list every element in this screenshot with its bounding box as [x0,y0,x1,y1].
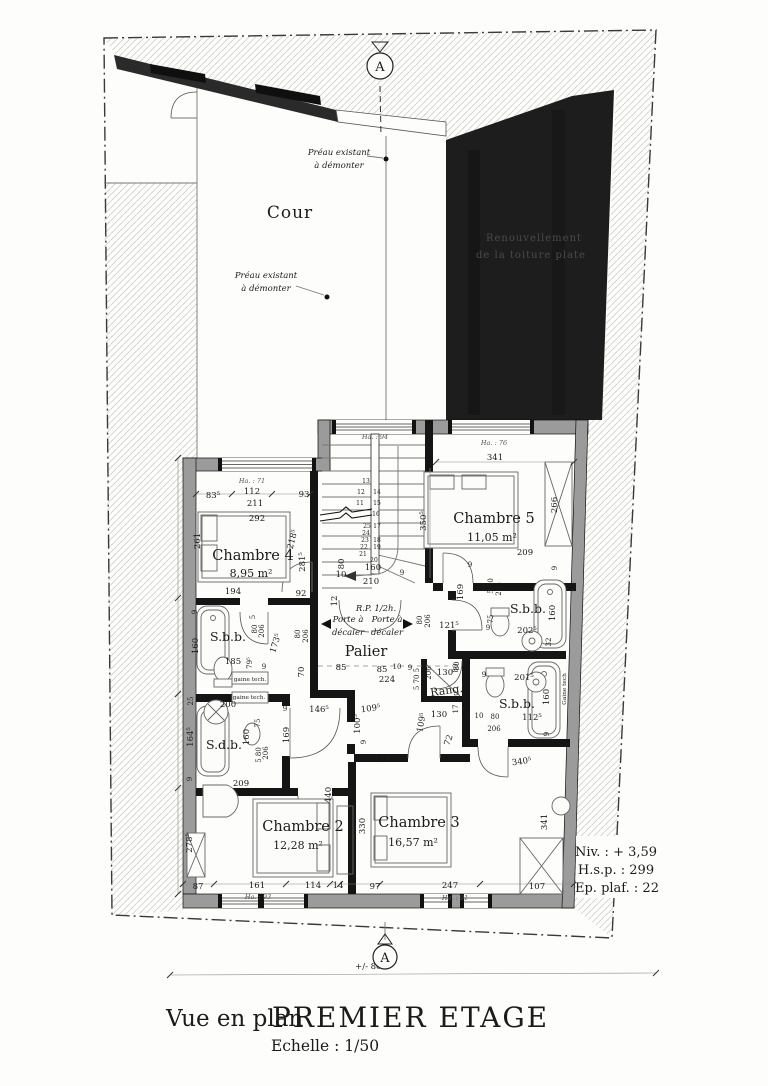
leader-dot [384,157,389,162]
dim-label: 5 [249,615,257,619]
dim-label: 24 [362,530,370,537]
dim-label: 200 [220,700,236,710]
plan-title: PREMIER ETAGE [272,1001,549,1034]
section-letter: A [379,951,390,966]
dim-label: 173⁵ [268,632,284,654]
dim-label: 21 [359,551,367,558]
dim-label: 14 [373,489,381,496]
dim-label: 32 [545,638,553,647]
room-label-palier: Palier [345,644,388,660]
dim-label: 109⁵ [415,712,428,734]
dim-label: 75 [487,615,495,624]
dim-label: 10 [336,570,347,580]
dim-label: 210 [363,577,379,587]
dim-label: 5 70 5 [413,668,421,690]
roof-note: Renouvellement [486,233,582,244]
stair-break-line [320,507,372,515]
duct-label: gaine tech. [233,695,266,701]
dim-label: 75 [254,719,262,728]
dim-label: 340⁵ [511,756,532,769]
door-sbb-right-bottom [478,747,508,777]
scale-label: Echelle : 1/50 [271,1037,379,1055]
dim-label: 17 [373,523,381,530]
room-label-sdb: S.d.b. [206,737,242,752]
dim-label: 330 [358,818,368,834]
dim-label: 23 [361,537,369,544]
door-shift-note: Porte à [332,614,364,625]
dim-label: 20 [370,557,378,564]
washbasin [552,797,570,815]
dim-label: 121⁵ [439,621,459,631]
dim-label: 114⁵ [374,754,394,764]
dim-label: 266 [550,497,560,513]
dim-label: 85 [336,663,347,673]
dim-label: 80 [294,630,302,639]
dim-label: 17 [452,705,460,714]
dim-label: 169 [282,727,292,743]
dim-label: 201⁵ [514,673,534,683]
dim-label: 247 [442,881,458,891]
dim-label: 161 [249,881,265,891]
window-ha94 [332,420,416,434]
dim-label: 9 [482,671,486,679]
preau-note-2: à démonter [241,283,291,294]
dim-label: 70 [297,667,307,678]
bed-chambre2 [253,799,353,877]
dim-label: 109⁵ [360,703,381,716]
dim-label: 169 [456,584,466,600]
dim-label: 9 [551,566,559,570]
fire-rating-note: R.P. 1/2h. [355,604,396,614]
dim-label: 206 [495,582,503,596]
door-sdb-hall [290,708,340,758]
dim-label: 112⁵ [522,713,542,723]
dim-label: 9 [283,705,287,713]
room-area-chambre2: 12,28 m² [273,839,323,852]
dim-label: 10 [475,712,484,720]
dim-label: 130 [431,710,447,720]
dim-label: 9 [408,664,412,672]
washbasin [203,785,238,817]
dim-label: 80 [337,559,347,570]
room-area-chambre3: 16,57 m² [388,836,438,849]
room-label-chambre4: Chambre 4 [212,548,293,564]
dim-label: 206 [487,725,501,733]
dim-label: 9 [262,663,266,671]
dim-label: 194 [225,587,241,597]
room-label-chambre5: Chambre 5 [453,511,534,527]
dim-label: 350⁵ [419,511,429,531]
dim-label: 9 [400,569,404,577]
dim-label: 100⁵ [353,714,363,734]
level-notes: Niv. : + 3,59 H.s.p. : 299 Ep. plaf. : 2… [575,836,659,898]
dim-label: 80 [491,713,500,721]
room-label-sbb-left: S.b.b. [210,629,246,644]
dim-label: 211 [247,499,263,509]
dim-label: 185 [225,657,241,667]
dim-label: 160 [365,563,381,573]
window-height-label: Ha. : 71 [238,477,265,485]
door-shift-arrow-right-icon [403,619,413,629]
dim-label: 80 [416,616,424,625]
dim-label: 130 [437,668,453,678]
dim-label: 209 [233,779,249,789]
dim-label: 9 [486,624,490,632]
dim-label: 206 [425,666,433,680]
dim-label: 12 [357,489,365,496]
dim-label: 206 [262,746,270,760]
leader-dot [325,295,330,300]
dim-label: 146⁵ [309,705,329,715]
dim-label: 97 [370,882,381,892]
dim-label: 160 [242,729,252,745]
dim-label: 92 [296,589,307,599]
window-ha71 [218,458,316,471]
dim-label: 18 [373,537,381,544]
dim-label: 206 [302,629,310,643]
dim-label: 25 [363,523,371,530]
door-shift-note: décaler [332,627,365,638]
dim-label: 160 [191,638,201,654]
dim-label: 261 [193,533,203,549]
door-shift-note: décaler [371,627,404,638]
dim-label: 9 [465,712,469,720]
window-ha76 [448,420,534,434]
dim-label: 292 [249,514,265,524]
dim-label: 14 [333,881,344,891]
note-ceiling-height: H.s.p. : 299 [578,863,654,878]
courtyard-label: Cour [267,203,313,223]
dim-label: 16 [372,511,380,518]
dim-label: 11 [356,500,364,507]
window-height-label: Ha. : 91 [441,894,468,902]
dim-label: 202⁵ [517,626,537,636]
dim-label: 164⁵ [186,727,196,747]
dim-label: 83⁵ [206,491,221,501]
dim-label: 80 [453,662,461,671]
dim-label: 93 [299,490,310,500]
preau-note-2: Préau existant [234,270,298,281]
dim-label: 79⁵ [246,657,254,669]
dim-label: 22 [360,544,368,551]
dim-label: 440 [324,787,334,803]
dim-label: 112 [244,487,260,497]
dim-label: 107 [529,882,545,892]
dim-label: 160 [548,605,558,621]
dim-label: 15 [373,500,381,507]
dim-label: 206 [424,614,432,628]
dim-label: 9 [360,740,368,744]
floor-plan-drawing: A [0,0,768,1086]
dim-label: 9 [186,777,194,781]
dim-label: 5 80 [487,578,495,594]
scanned-floor-plan-page: A [0,0,768,1086]
room-area-chambre4: 8,95 m² [230,567,273,580]
dim-label: 19 [373,544,381,551]
dim-label: 87 [193,882,204,892]
room-label-chambre3: Chambre 3 [378,815,459,831]
section-letter: A [374,60,385,75]
preau-note-1: Préau existant [307,147,371,158]
dim-label: 9 [543,732,551,736]
toilet [486,668,504,697]
dim-label: 341 [540,814,550,830]
room-label-chambre2: Chambre 2 [262,819,343,835]
dim-label: 25 [187,697,195,706]
dim-label: 13 [362,478,370,485]
overall-dimension: +/- 860 [167,962,659,978]
dim-label: 114 [305,881,321,891]
duct-label: gaine tech. [234,677,267,683]
preau-note-1: à démonter [314,160,364,171]
section-marker-bottom: A [373,922,397,969]
dim-label: 10 [393,663,402,671]
room-area-chambre5: 11,05 m² [467,531,517,544]
dim-label: 9 [468,561,472,569]
duct-label: Gaine tech [562,673,568,705]
dim-label: 85 [377,665,388,675]
window-height-label: Ha. : 94 [361,433,388,441]
dim-label: 209 [517,548,533,558]
door-shift-arrow-left-icon [321,619,331,629]
room-label-sbb-right-bottom: S.b.b. [499,696,535,711]
dim-label: 160 [542,689,552,705]
dim-label: 281⁵ [298,552,308,572]
door-shift-note: Porte à [371,614,403,625]
roof-note: de la toiture plate [476,250,586,261]
room-label-sbb-right-top: S.b.b. [510,601,546,616]
window-height-label: Ha. : 76 [480,439,507,447]
dim-label: 278⁵ [185,833,195,853]
dim-label: 12 [330,596,340,607]
dim-label: 224 [379,675,395,685]
note-ceiling-thickness: Ep. plaf. : 22 [575,881,659,896]
dim-label: 72 [443,734,456,748]
dim-label: 206 [258,624,266,638]
title-block: Vue en plan PREMIER ETAGE Echelle : 1/50 [165,1001,549,1055]
note-level: Niv. : + 3,59 [575,845,657,860]
dim-label: 341 [487,453,503,463]
window-height-label: Ha. : 93 [244,893,271,901]
dim-label: 9 [191,610,199,614]
